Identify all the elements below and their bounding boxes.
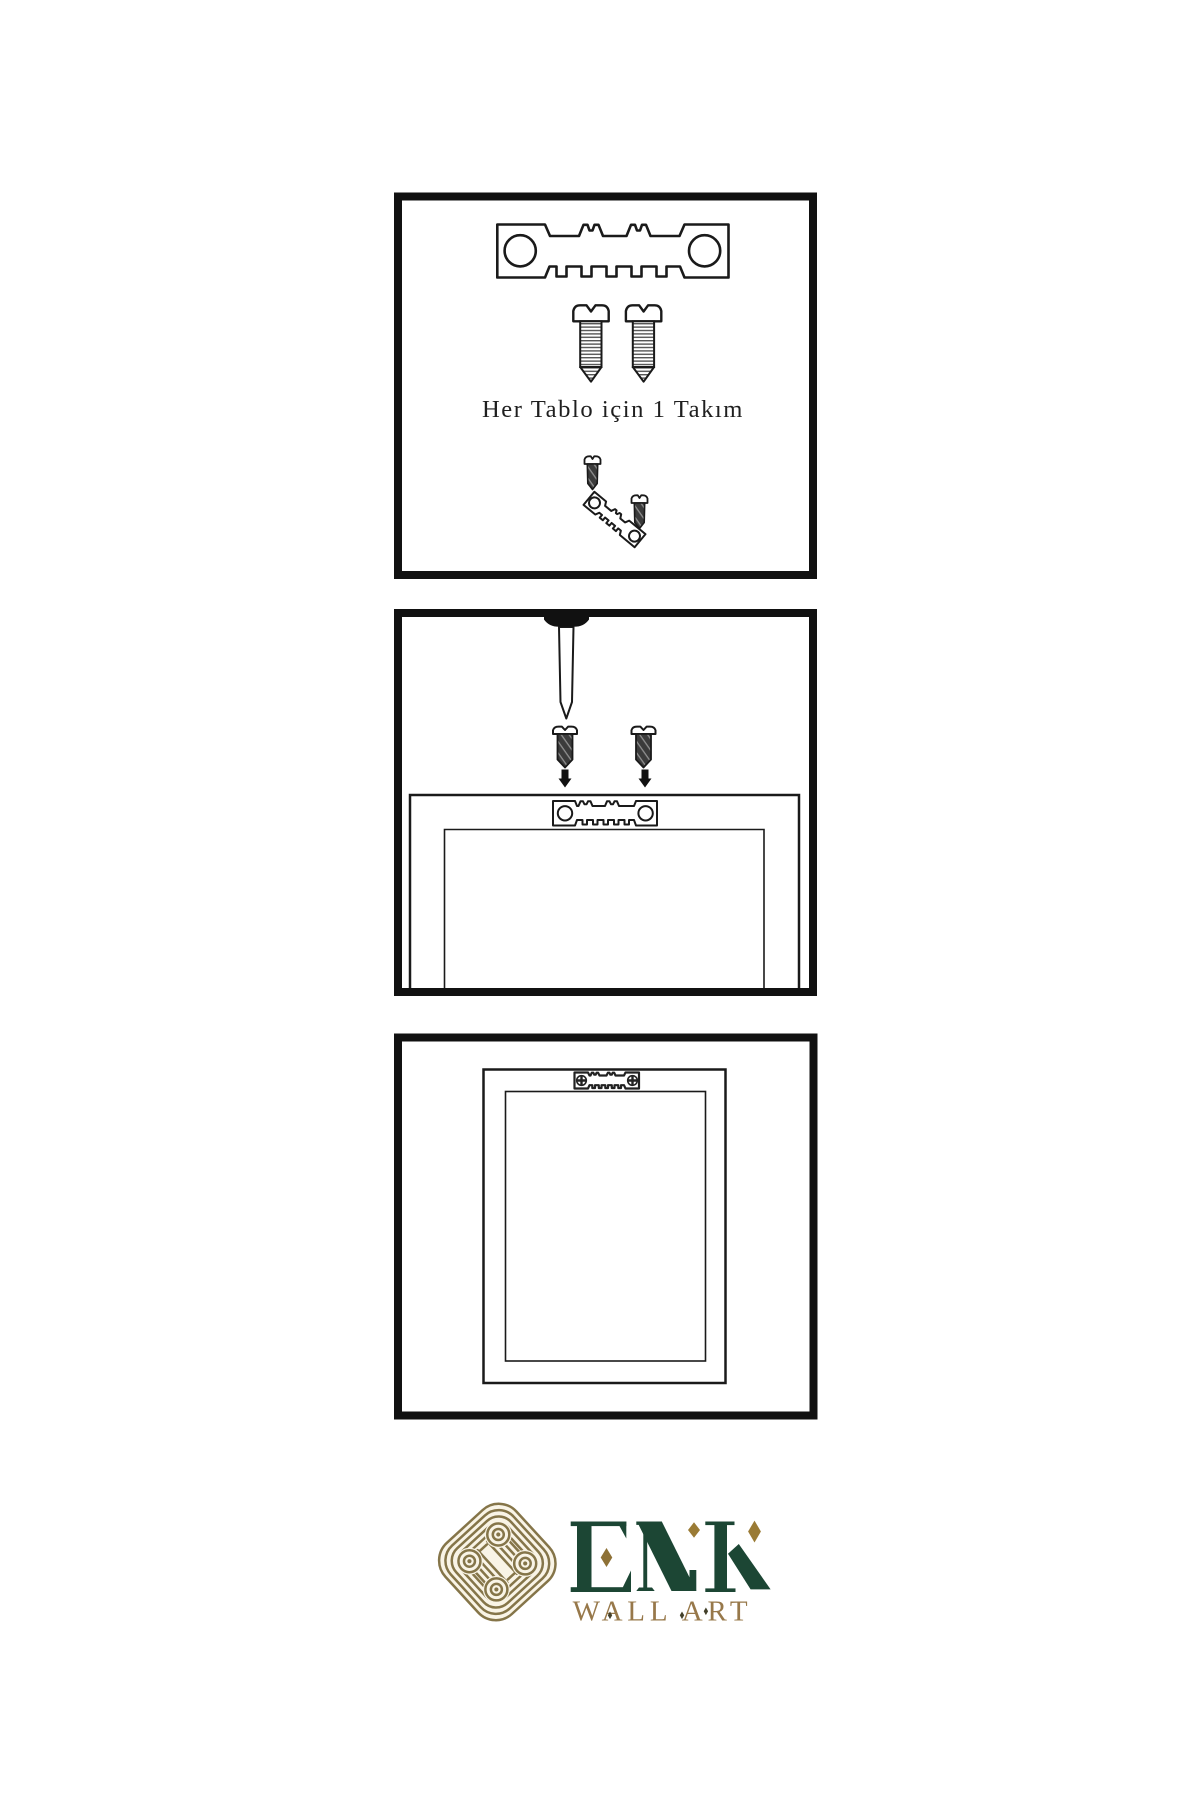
svg-text:Her Tablo için 1 Takım: Her Tablo için 1 Takım <box>482 396 744 423</box>
svg-text:WALL ART: WALL ART <box>573 1596 753 1628</box>
